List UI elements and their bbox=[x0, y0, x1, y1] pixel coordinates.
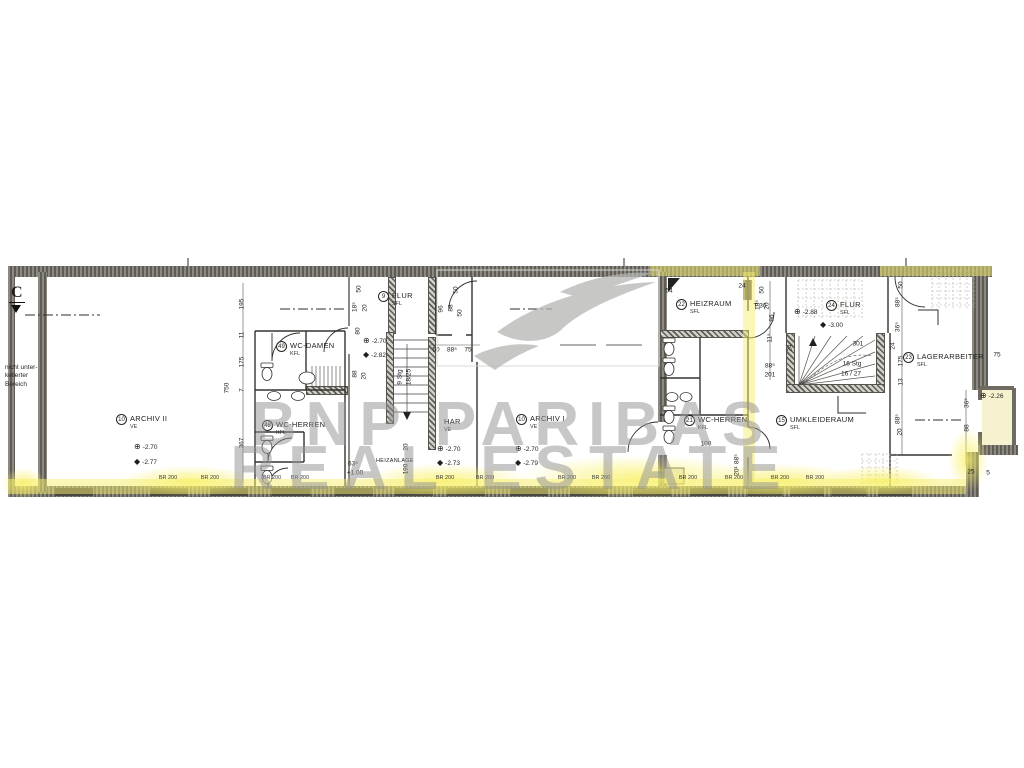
dimension-label: 195 bbox=[239, 299, 246, 310]
room-name-block: HEIZRAUMSFL bbox=[690, 299, 732, 315]
room-usage-code: VE bbox=[444, 427, 461, 433]
room-name-block: LAGERARBEITERSFL bbox=[917, 352, 984, 368]
dimension-label: 50 bbox=[759, 286, 766, 293]
level-value: -2.70 bbox=[446, 446, 461, 453]
dimension-label: +1.00 bbox=[347, 470, 363, 477]
level-value: -2.77 bbox=[142, 459, 157, 466]
room-number: 15 bbox=[776, 415, 787, 426]
dimension-label: 36⁵ bbox=[895, 322, 902, 332]
dimension-label: 175 bbox=[239, 357, 246, 368]
room-label-umkleideraum: 15UMKLEIDERAUMSFL bbox=[776, 415, 854, 431]
dimension-label: 190 bbox=[403, 464, 410, 475]
room-name: WC-HERREN bbox=[276, 420, 325, 429]
room-usage-code: VE bbox=[130, 424, 167, 430]
room-name: UMKLEIDERAUM bbox=[790, 415, 854, 424]
level-symbol-icon: ⊕ bbox=[363, 337, 370, 345]
dimension-label: 13 bbox=[898, 378, 905, 385]
stair-ratio-label: 16 / 27 bbox=[841, 371, 861, 378]
dimension-label: 11⁵ bbox=[767, 333, 774, 342]
section-marker-c: C bbox=[9, 284, 25, 303]
note-line: nicht unter- bbox=[5, 364, 38, 371]
stair-ratio-label: 18/25 bbox=[406, 369, 413, 385]
light-well-label: BR 200 bbox=[806, 475, 824, 481]
room-label-flur: 9FLURSFL bbox=[378, 291, 413, 307]
dimension-label: 20 bbox=[897, 428, 904, 435]
room-name-block: FLURSFL bbox=[840, 300, 861, 316]
label-layer: C nicht unter- kellerter Bereich T 30 9 … bbox=[0, 0, 1024, 768]
level-symbol-icon: ◆ bbox=[437, 459, 443, 467]
light-well-label: BR 200 bbox=[291, 475, 309, 481]
level-value: -2.70 bbox=[372, 338, 387, 345]
room-usage-code: SFL bbox=[392, 301, 413, 307]
room-label-archiv-ii: 10ARCHIV IIVE bbox=[116, 414, 167, 430]
room-label-wc-damen: 49WC-DAMENKFL bbox=[276, 341, 334, 357]
room-label-wc-herren: 48WC-HERRENKFL bbox=[262, 420, 325, 436]
light-well-label: BR 200 bbox=[592, 475, 610, 481]
dimension-label: 88⁵ bbox=[765, 363, 775, 370]
level-symbol-icon: ◆ bbox=[363, 351, 369, 359]
level-mark: ⊕-2.88 bbox=[794, 308, 818, 316]
room-name: LAGERARBEITER bbox=[917, 352, 984, 361]
room-name-block: FLURSFL bbox=[392, 291, 413, 307]
room-name: HEIZANLAGE bbox=[376, 458, 414, 464]
room-name: WC-HERREN bbox=[698, 415, 747, 424]
dimension-label: 88 bbox=[448, 304, 455, 311]
level-symbol-icon: ◆ bbox=[515, 459, 521, 467]
room-name-block: UMKLEIDERAUMSFL bbox=[790, 415, 854, 431]
level-mark: ⊕-2.70 bbox=[134, 443, 158, 451]
dimension-label: 5 bbox=[986, 470, 990, 477]
level-value: -2.70 bbox=[524, 446, 539, 453]
dimension-label: 75 bbox=[993, 352, 1000, 359]
level-mark: ◆-2.77 bbox=[134, 458, 157, 466]
note-line: kellerter bbox=[5, 372, 28, 379]
fire-door-label: T 30 bbox=[754, 303, 767, 310]
light-well-label: BR 200 bbox=[201, 475, 219, 481]
level-value: -2.82 bbox=[371, 352, 386, 359]
dimension-label: 96 bbox=[769, 314, 776, 321]
dimension-label: 7 bbox=[239, 388, 246, 392]
dimension-label: 50 bbox=[457, 309, 464, 316]
room-label-heizanlage: HEIZANLAGE bbox=[376, 458, 414, 464]
dimension-label: 20 bbox=[403, 443, 410, 450]
dimension-label: 36⁵ bbox=[964, 398, 971, 408]
room-name-block: WC-DAMENKFL bbox=[290, 341, 334, 357]
level-mark: ⊕-2.70 bbox=[437, 445, 461, 453]
dimension-label: 88⁵ bbox=[447, 347, 457, 354]
room-usage-code: KFL bbox=[276, 430, 325, 436]
room-name: HEIZRAUM bbox=[690, 299, 732, 308]
room-name-block: WC-HERRENKFL bbox=[698, 415, 747, 431]
room-name: FLUR bbox=[392, 291, 413, 300]
dimension-label: 96 bbox=[438, 305, 445, 312]
dimension-label: 50 bbox=[432, 347, 439, 354]
dimension-label: 88⁵ bbox=[895, 297, 902, 307]
room-label-heizraum: 22HEIZRAUMSFL bbox=[676, 299, 732, 315]
dimension-label: 18⁵ bbox=[352, 302, 359, 312]
dimension-label: 75 bbox=[464, 347, 471, 354]
dimension-label: 88 bbox=[964, 424, 971, 431]
light-well-label: BR 200 bbox=[771, 475, 789, 481]
level-mark: ⊕-2.70 bbox=[363, 337, 387, 345]
room-number: 24 bbox=[826, 300, 837, 311]
dimension-label: 50 bbox=[898, 281, 905, 288]
room-name-block: HARVE bbox=[444, 417, 461, 433]
room-number: 49 bbox=[276, 341, 287, 352]
level-symbol-icon: ◆ bbox=[134, 458, 140, 466]
level-symbol-icon: ⊕ bbox=[980, 392, 987, 400]
dimension-label: 63⁵ bbox=[348, 461, 358, 468]
dimension-label: 100 bbox=[701, 441, 712, 448]
room-usage-code: SFL bbox=[790, 425, 854, 431]
room-usage-code: SFL bbox=[840, 310, 861, 316]
dimension-label: 80 bbox=[355, 327, 362, 334]
dimension-label: 24 bbox=[890, 342, 897, 349]
dimension-label: 88 bbox=[352, 370, 359, 377]
dimension-label: 24 bbox=[738, 283, 745, 290]
room-label-wc-herren: 21WC-HERRENKFL bbox=[684, 415, 747, 431]
light-well-label: BR 200 bbox=[476, 475, 494, 481]
room-name: ARCHIV II bbox=[130, 414, 167, 423]
dimension-label: 367 bbox=[239, 438, 246, 449]
note-line: Bereich bbox=[5, 381, 27, 388]
room-name: WC-DAMEN bbox=[290, 341, 334, 350]
dimension-label: 25 bbox=[967, 469, 974, 476]
level-symbol-icon: ◆ bbox=[820, 321, 826, 329]
dimension-label: 20 bbox=[362, 304, 369, 311]
room-usage-code: KFL bbox=[698, 425, 747, 431]
dimension-label: 88⁵ bbox=[734, 454, 741, 464]
room-label-har: HARVE bbox=[444, 417, 461, 433]
dimension-label: 201 bbox=[765, 372, 776, 379]
level-mark: ◆-3.00 bbox=[820, 321, 843, 329]
room-number: 48 bbox=[262, 420, 273, 431]
light-well-label: BR 200 bbox=[159, 475, 177, 481]
light-well-label: BR 200 bbox=[436, 475, 454, 481]
stair-steps-label: 9 Stg bbox=[397, 369, 404, 384]
level-mark: ⊕-2.26 bbox=[980, 392, 1004, 400]
room-number: 23 bbox=[903, 352, 914, 363]
room-name: ARCHIV I bbox=[530, 414, 565, 423]
level-symbol-icon: ⊕ bbox=[134, 443, 141, 451]
room-label-archiv-i: 10ARCHIV IVE bbox=[516, 414, 565, 430]
room-number: 10 bbox=[116, 414, 127, 425]
room-number: 21 bbox=[684, 415, 695, 426]
section-arrow-icon bbox=[11, 305, 21, 313]
level-mark: ◆-2.82 bbox=[363, 351, 386, 359]
room-usage-code: KFL bbox=[290, 351, 334, 357]
room-label-lagerarbeiter: 23LAGERARBEITERSFL bbox=[903, 352, 984, 368]
level-value: -3.00 bbox=[828, 322, 843, 329]
dimension-label: 50 bbox=[356, 285, 363, 292]
room-name-block: HEIZANLAGE bbox=[376, 458, 414, 464]
room-number: 22 bbox=[676, 299, 687, 310]
level-value: -2.88 bbox=[803, 309, 818, 316]
level-value: -2.70 bbox=[143, 444, 158, 451]
note-nicht-unterkellert: nicht unter- kellerter Bereich bbox=[5, 364, 38, 389]
dimension-label: 54 bbox=[665, 288, 672, 295]
level-symbol-icon: ⊕ bbox=[794, 308, 801, 316]
light-well-label: BR 200 bbox=[263, 475, 281, 481]
room-name: HAR bbox=[444, 417, 461, 426]
room-name-block: ARCHIV IVE bbox=[530, 414, 565, 430]
room-number: 9 bbox=[378, 291, 389, 302]
dimension-label: 20 bbox=[361, 372, 368, 379]
dimension-label: 24 bbox=[787, 344, 794, 351]
level-value: -2.73 bbox=[445, 460, 460, 467]
level-mark: ⊕-2.70 bbox=[515, 445, 539, 453]
light-well-label: BR 200 bbox=[679, 475, 697, 481]
level-value: -2.79 bbox=[523, 460, 538, 467]
dimension-label: 50 bbox=[453, 286, 460, 293]
level-symbol-icon: ⊕ bbox=[515, 445, 522, 453]
level-mark: ◆-2.73 bbox=[437, 459, 460, 467]
dimension-label: 750 bbox=[224, 383, 231, 394]
floor-plan-scan: C nicht unter- kellerter Bereich T 30 9 … bbox=[0, 0, 1024, 768]
level-symbol-icon: ⊕ bbox=[437, 445, 444, 453]
dimension-label: 88⁵ bbox=[895, 414, 902, 424]
room-usage-code: SFL bbox=[917, 362, 984, 368]
level-value: -2.26 bbox=[989, 393, 1004, 400]
room-usage-code: VE bbox=[530, 424, 565, 430]
room-name-block: WC-HERRENKFL bbox=[276, 420, 325, 436]
light-well-label: BR 200 bbox=[725, 475, 743, 481]
room-name-block: ARCHIV IIVE bbox=[130, 414, 167, 430]
level-mark: ◆-2.79 bbox=[515, 459, 538, 467]
light-well-label: BR 200 bbox=[558, 475, 576, 481]
room-name: FLUR bbox=[840, 300, 861, 309]
room-number: 10 bbox=[516, 414, 527, 425]
dimension-label: 11 bbox=[239, 332, 246, 339]
room-label-flur: 24FLURSFL bbox=[826, 300, 861, 316]
stair-number-label: 301 bbox=[853, 341, 864, 348]
stair-steps-label: 16 Stg bbox=[843, 361, 862, 368]
room-usage-code: SFL bbox=[690, 309, 732, 315]
